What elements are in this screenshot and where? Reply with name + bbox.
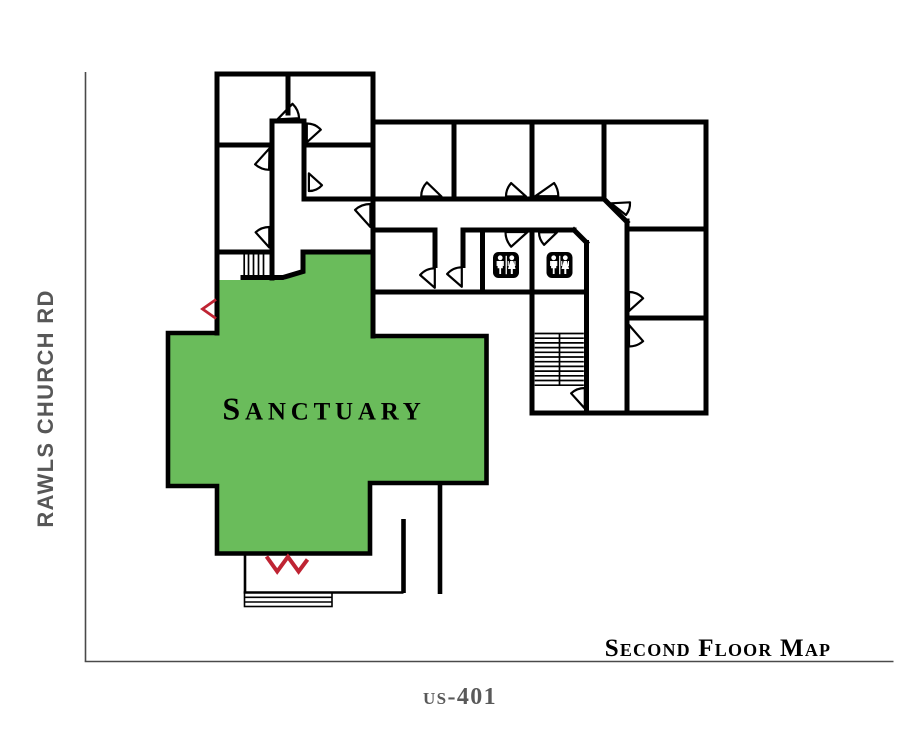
svg-text:RAWLS CHURCH RD: RAWLS CHURCH RD [33, 289, 58, 527]
svg-text:Second Floor Map: Second Floor Map [605, 635, 831, 662]
svg-text:us-401: us-401 [423, 684, 497, 710]
